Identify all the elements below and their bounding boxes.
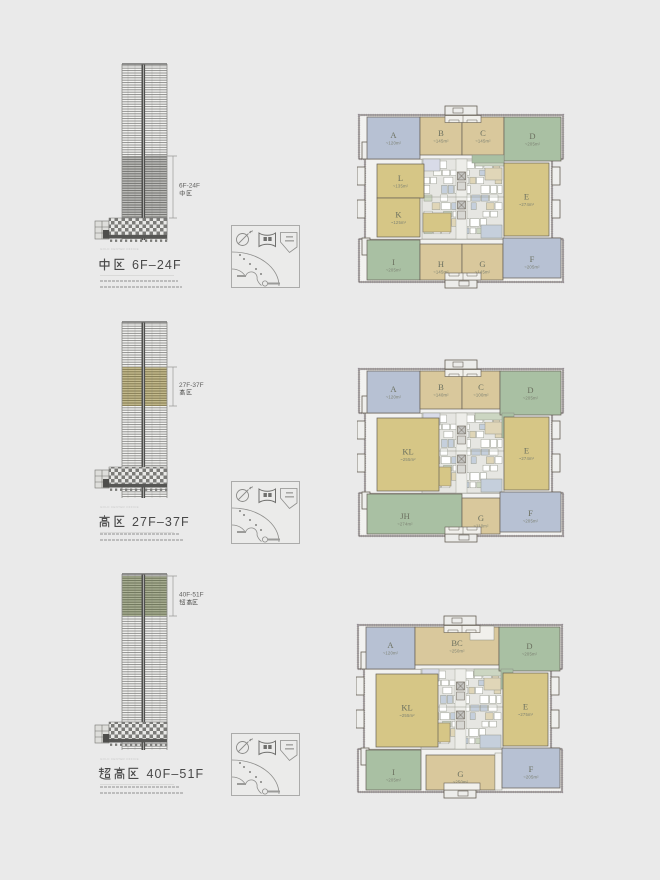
svg-text:~140m²: ~140m²	[433, 393, 449, 398]
svg-text:~205m²: ~205m²	[523, 775, 539, 780]
svg-text:~275m²: ~275m²	[518, 712, 534, 717]
svg-text:D: D	[527, 385, 533, 395]
svg-text:~205m²: ~205m²	[523, 519, 539, 524]
svg-text:I: I	[392, 257, 395, 267]
svg-text:G: G	[478, 513, 484, 523]
svg-text:~120m²: ~120m²	[386, 395, 402, 400]
svg-text:K: K	[395, 210, 402, 220]
svg-text:27F-37F: 27F-37F	[179, 382, 204, 389]
svg-text:E: E	[523, 702, 528, 712]
svg-text:D: D	[529, 131, 535, 141]
svg-text:~274m²: ~274m²	[519, 456, 535, 461]
svg-text:~125m²: ~125m²	[391, 220, 407, 225]
svg-text:~205m²: ~205m²	[522, 652, 538, 657]
svg-text:F: F	[529, 764, 534, 774]
svg-text:G: G	[479, 259, 485, 269]
svg-text:~274m²: ~274m²	[519, 202, 535, 207]
svg-text:~145m²: ~145m²	[433, 139, 449, 144]
svg-text:~145m²: ~145m²	[475, 139, 491, 144]
svg-text:~205m²: ~205m²	[525, 142, 541, 147]
svg-text:~205m²: ~205m²	[524, 265, 540, 270]
svg-text:~205m²: ~205m²	[386, 268, 402, 273]
svg-text:L: L	[398, 173, 403, 183]
svg-text:~120m²: ~120m²	[383, 651, 399, 656]
svg-text:A: A	[387, 640, 394, 650]
svg-text:~135m²: ~135m²	[393, 184, 409, 189]
svg-text:E: E	[524, 446, 529, 456]
svg-text:F: F	[530, 254, 535, 264]
svg-text:KL: KL	[401, 703, 412, 713]
svg-text:B: B	[438, 128, 444, 138]
svg-text:I: I	[392, 767, 395, 777]
svg-text:H: H	[438, 259, 444, 269]
svg-text:G: G	[457, 769, 463, 779]
svg-text:B: B	[438, 382, 444, 392]
svg-text:JH: JH	[400, 511, 409, 521]
svg-text:~274m²: ~274m²	[397, 522, 413, 527]
svg-text:~120m²: ~120m²	[386, 141, 402, 146]
svg-text:C: C	[480, 128, 486, 138]
svg-text:KL: KL	[402, 447, 413, 457]
svg-text:~205m²: ~205m²	[386, 778, 402, 783]
svg-text:~205m²: ~205m²	[523, 396, 539, 401]
svg-text:D: D	[526, 641, 532, 651]
svg-text:E: E	[524, 192, 529, 202]
svg-text:C: C	[478, 382, 484, 392]
svg-text:~255m²: ~255m²	[399, 713, 415, 718]
svg-text:6F-24F: 6F-24F	[179, 183, 200, 190]
svg-text:BC: BC	[451, 638, 463, 648]
svg-text:~250m²: ~250m²	[449, 649, 465, 654]
svg-text:A: A	[390, 130, 397, 140]
svg-text:A: A	[390, 384, 397, 394]
svg-text:40F-51F: 40F-51F	[179, 592, 204, 599]
svg-text:~255m²: ~255m²	[400, 457, 416, 462]
svg-text:~100m²: ~100m²	[473, 393, 489, 398]
svg-text:F: F	[528, 508, 533, 518]
